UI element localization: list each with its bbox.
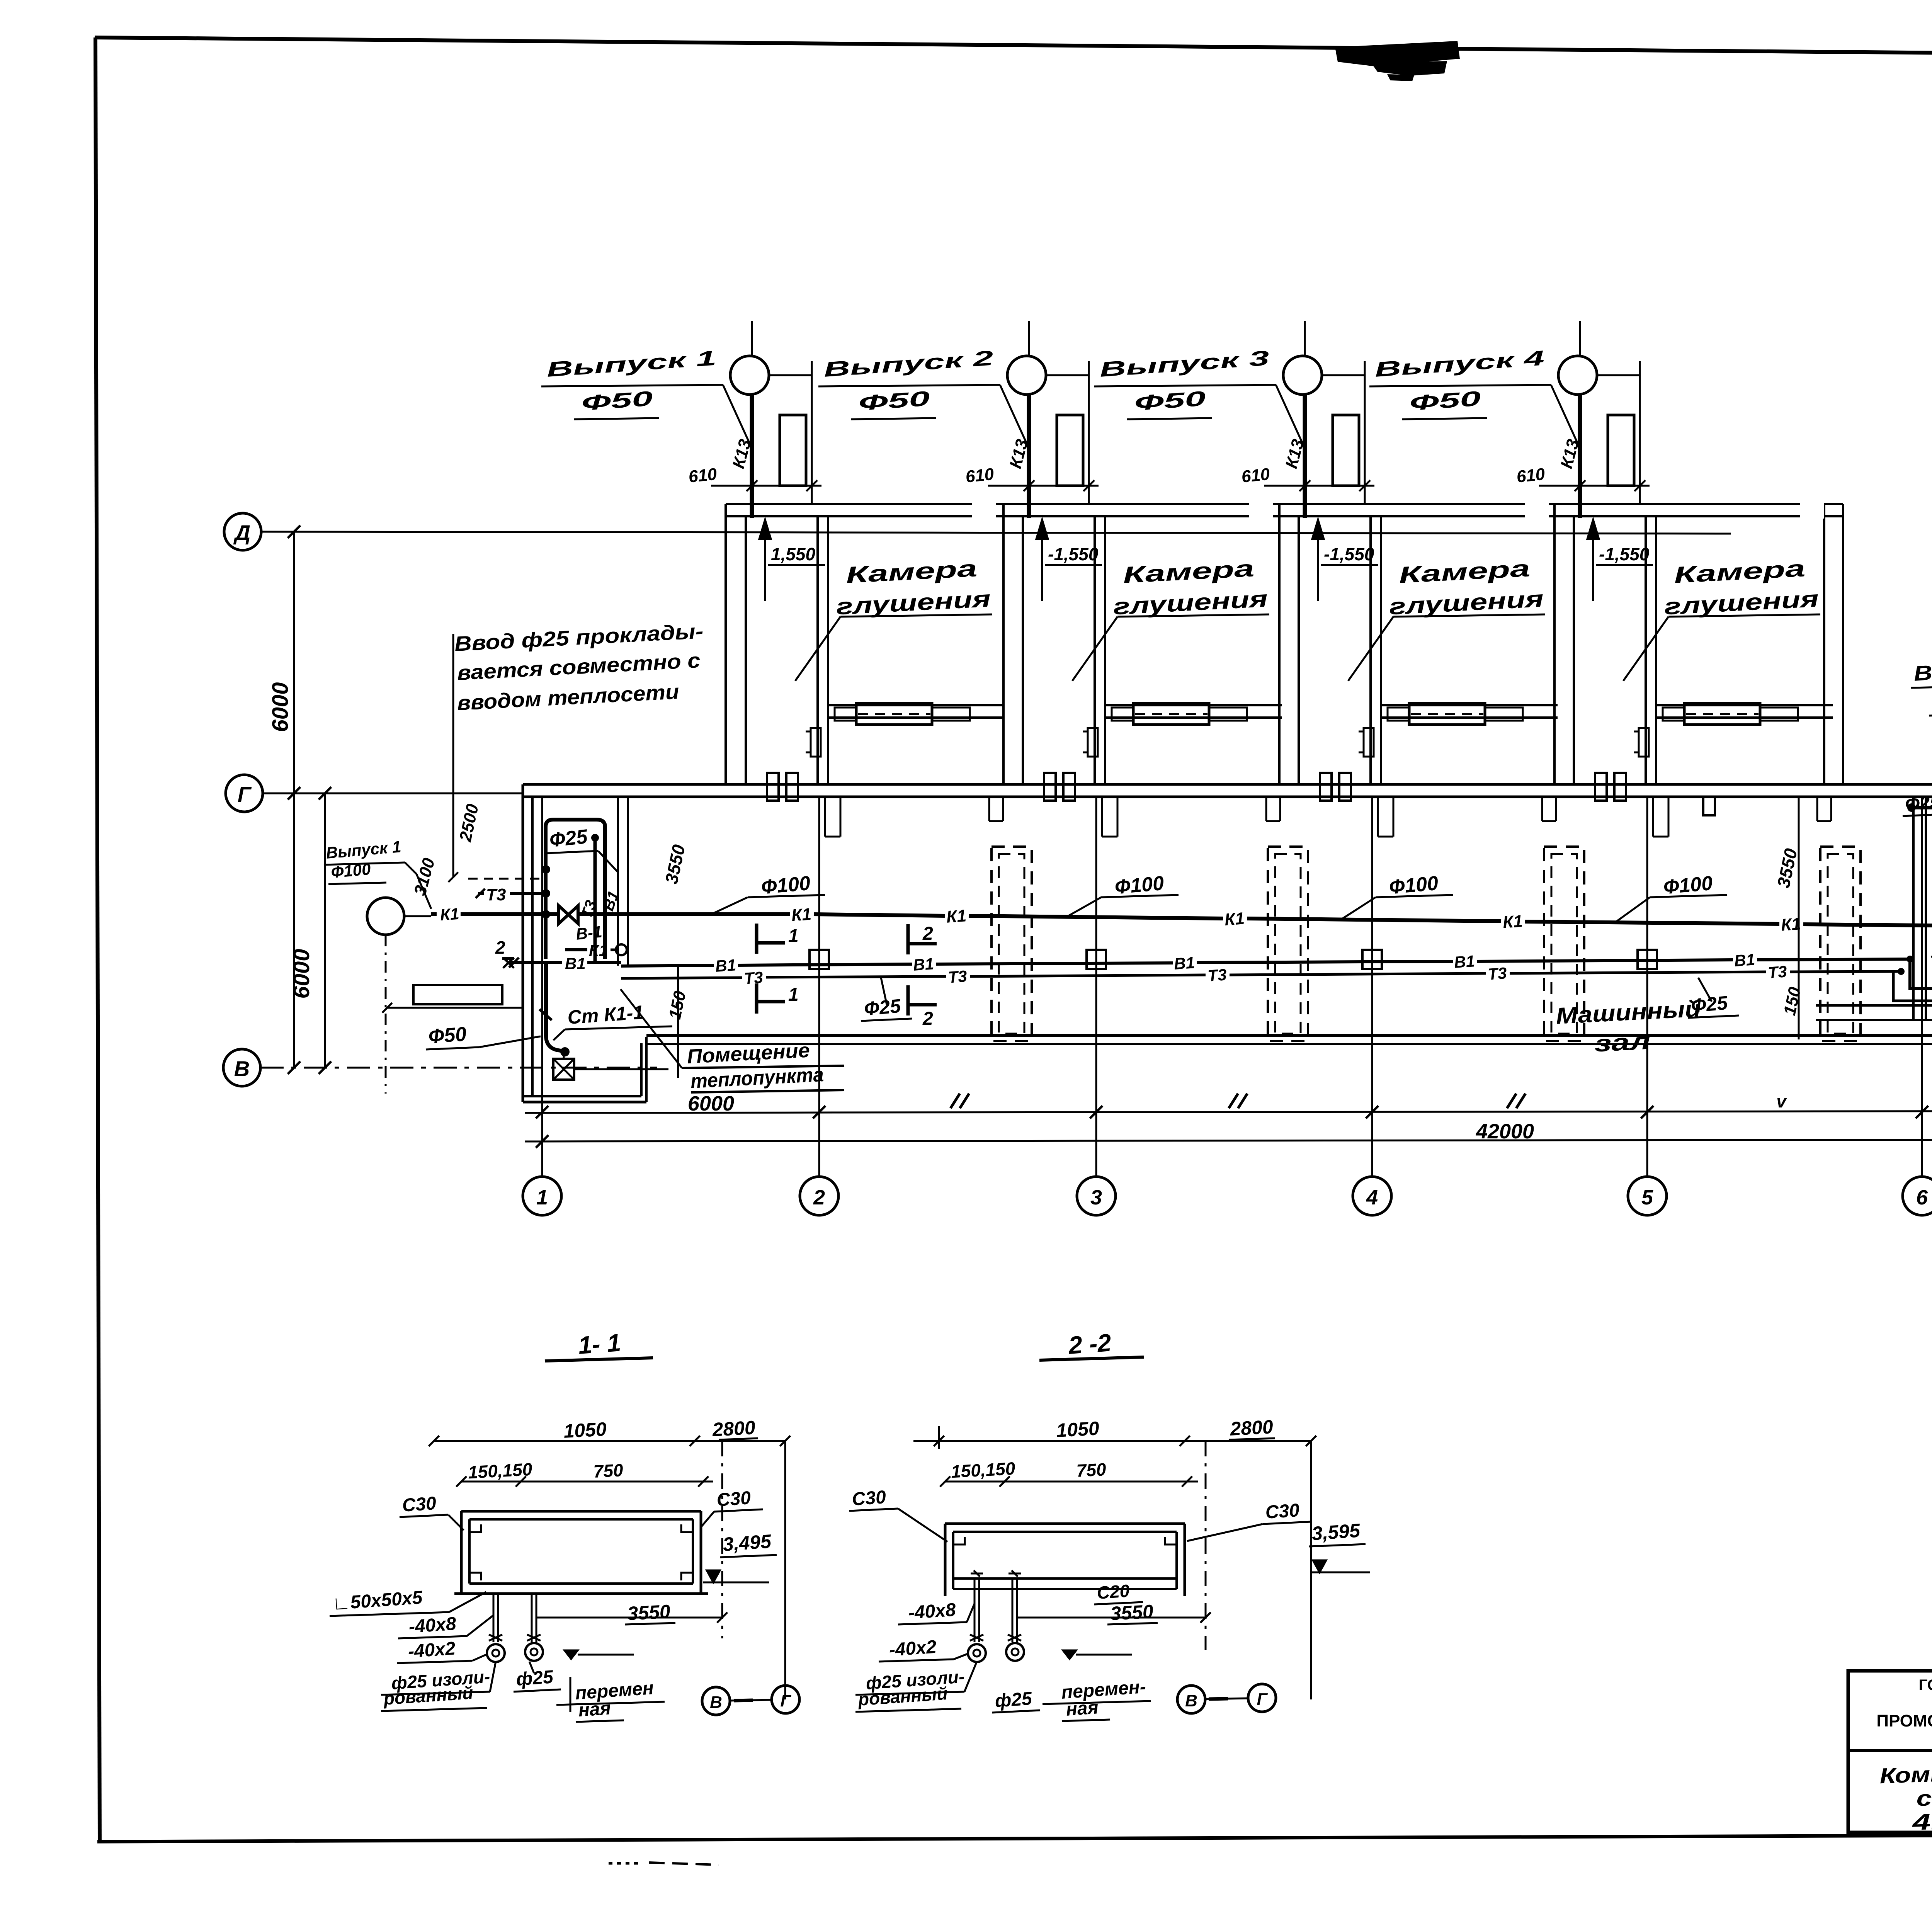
svg-text:ная: ная — [578, 1698, 611, 1721]
svg-text:3550: 3550 — [627, 1601, 671, 1624]
svg-text:Ф50: Ф50 — [428, 1023, 467, 1048]
svg-text:1,550: 1,550 — [771, 544, 816, 564]
svg-text:С30: С30 — [1265, 1500, 1300, 1523]
svg-text:ф25: ф25 — [515, 1667, 554, 1690]
svg-text:В1: В1 — [1173, 953, 1196, 973]
svg-text:1: 1 — [788, 926, 799, 946]
svg-text:Т3: Т3 — [1767, 962, 1787, 981]
svg-text:-1,550: -1,550 — [1324, 544, 1374, 564]
svg-text:2: 2 — [922, 1009, 933, 1029]
svg-text:4К-500А: 4К-500А — [1912, 1805, 1932, 1835]
svg-text:Ф25: Ф25 — [548, 825, 589, 852]
svg-text:-40х2: -40х2 — [888, 1637, 937, 1660]
svg-text:2800: 2800 — [711, 1417, 756, 1441]
svg-text:750: 750 — [593, 1460, 624, 1482]
svg-text:К1: К1 — [791, 905, 812, 925]
svg-text:ПРОМСТРОЙНИИПРОЕКТ: ПРОМСТРОЙНИИПРОЕКТ — [1876, 1711, 1932, 1730]
svg-text:Г: Г — [780, 1691, 791, 1710]
svg-text:3550: 3550 — [1110, 1601, 1154, 1624]
svg-text:Т3: Т3 — [486, 885, 506, 904]
svg-text:1050: 1050 — [1056, 1417, 1100, 1441]
svg-text:Д: Д — [233, 520, 250, 545]
svg-text:1: 1 — [788, 985, 799, 1005]
svg-text:750: 750 — [1076, 1459, 1107, 1481]
svg-text:610: 610 — [1515, 464, 1546, 486]
svg-text:-40х8: -40х8 — [908, 1600, 956, 1623]
svg-text:2800: 2800 — [1229, 1416, 1274, 1440]
svg-text:Ф25: Ф25 — [1904, 791, 1932, 815]
svg-text:-40х8: -40х8 — [408, 1614, 457, 1637]
svg-text:610: 610 — [964, 464, 995, 486]
svg-text:В1: В1 — [715, 956, 737, 975]
svg-text:В1: В1 — [565, 954, 586, 973]
svg-text:v: v — [1776, 1091, 1787, 1111]
svg-text:Ф100: Ф100 — [330, 860, 372, 881]
svg-text:ГОССТРОЙ СССР: ГОССТРОЙ СССР — [1919, 1676, 1932, 1694]
svg-text:В1: В1 — [1734, 950, 1756, 970]
svg-text:Г: Г — [238, 782, 252, 806]
svg-text:К1: К1 — [589, 941, 608, 959]
svg-text:ф25: ф25 — [994, 1688, 1033, 1711]
svg-text:В1: В1 — [913, 954, 935, 974]
svg-text:150,150: 150,150 — [468, 1459, 533, 1483]
svg-text:6000: 6000 — [688, 1092, 734, 1115]
svg-text:3: 3 — [1090, 1186, 1102, 1209]
svg-text:Т3: Т3 — [743, 968, 764, 987]
svg-text:К1: К1 — [1502, 912, 1524, 932]
svg-text:К1: К1 — [946, 906, 967, 926]
svg-text:6000: 6000 — [268, 682, 293, 732]
svg-text:42000: 42000 — [1476, 1120, 1534, 1143]
svg-text:-1,550: -1,550 — [1599, 544, 1650, 564]
svg-text:1: 1 — [536, 1186, 548, 1209]
svg-text:6000: 6000 — [289, 949, 314, 998]
svg-text:1- 1: 1- 1 — [577, 1328, 622, 1359]
svg-text:4: 4 — [1366, 1186, 1378, 1209]
svg-text:В: В — [234, 1056, 250, 1081]
svg-text:3,595: 3,595 — [1311, 1519, 1361, 1544]
svg-text:Г: Г — [1257, 1690, 1268, 1709]
svg-text:зал: зал — [1594, 1028, 1651, 1056]
svg-text:610: 610 — [687, 464, 718, 486]
svg-text:С20: С20 — [1096, 1580, 1130, 1603]
svg-text:С30: С30 — [851, 1487, 887, 1510]
svg-text:2: 2 — [922, 924, 933, 944]
svg-text:2: 2 — [813, 1186, 825, 1209]
svg-text:Т3: Т3 — [1207, 965, 1227, 985]
svg-text:-1,550: -1,550 — [1048, 544, 1099, 564]
svg-text:В1: В1 — [1454, 952, 1476, 971]
svg-text:150,150: 150,150 — [951, 1458, 1016, 1482]
svg-text:2: 2 — [495, 937, 505, 958]
svg-text:К1: К1 — [439, 905, 459, 924]
svg-text:1050: 1050 — [563, 1418, 607, 1442]
svg-text:-40х2: -40х2 — [407, 1638, 456, 1662]
svg-text:3,495: 3,495 — [722, 1530, 772, 1555]
svg-text:5: 5 — [1641, 1186, 1653, 1209]
svg-text:Т3: Т3 — [1487, 964, 1507, 983]
svg-text:В: В — [710, 1693, 722, 1712]
svg-text:В: В — [1185, 1691, 1197, 1710]
svg-text:2 -2: 2 -2 — [1067, 1328, 1112, 1359]
svg-text:Т3: Т3 — [947, 967, 968, 986]
svg-text:С30: С30 — [401, 1493, 437, 1516]
svg-text:6: 6 — [1916, 1186, 1928, 1209]
svg-text:К1: К1 — [1224, 909, 1245, 929]
svg-text:В-1: В-1 — [575, 922, 603, 943]
svg-text:Ф25: Ф25 — [863, 995, 902, 1020]
svg-text:ная: ная — [1065, 1697, 1099, 1720]
svg-text:610: 610 — [1240, 464, 1271, 486]
svg-text:станция: станция — [1916, 1782, 1932, 1810]
